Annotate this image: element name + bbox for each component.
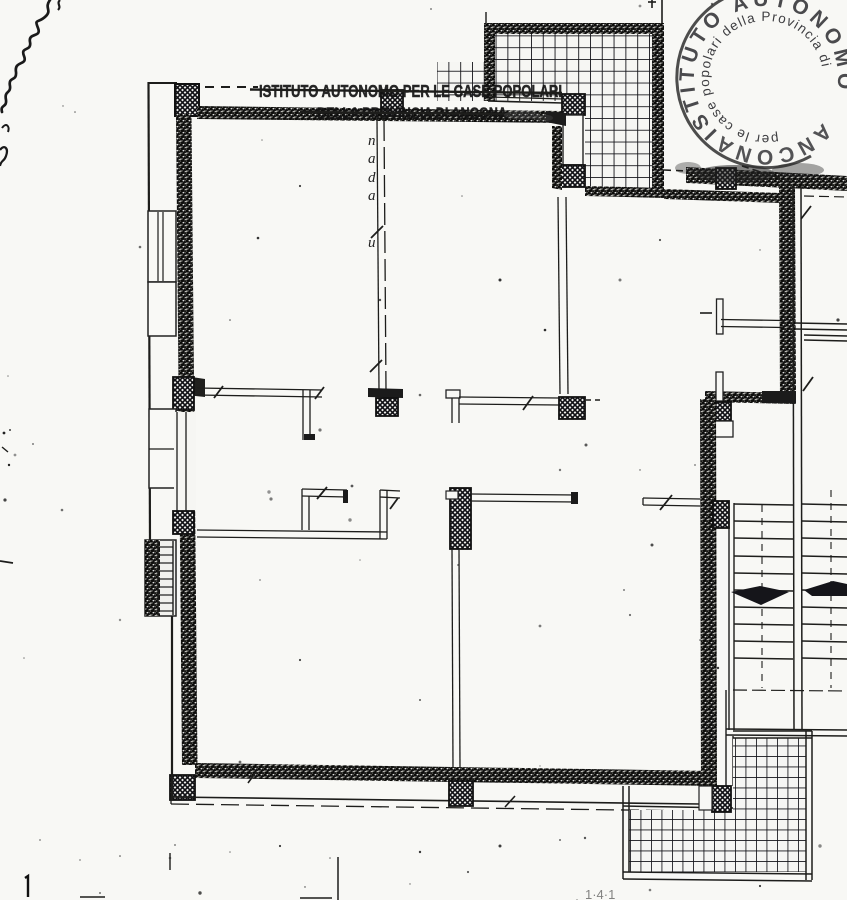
svg-text:d: d	[368, 170, 376, 186]
svg-text:1·4·1: 1·4·1	[585, 887, 615, 900]
svg-text:a: a	[368, 188, 376, 204]
svg-text:a: a	[368, 151, 376, 167]
svg-text:n: n	[368, 133, 376, 149]
